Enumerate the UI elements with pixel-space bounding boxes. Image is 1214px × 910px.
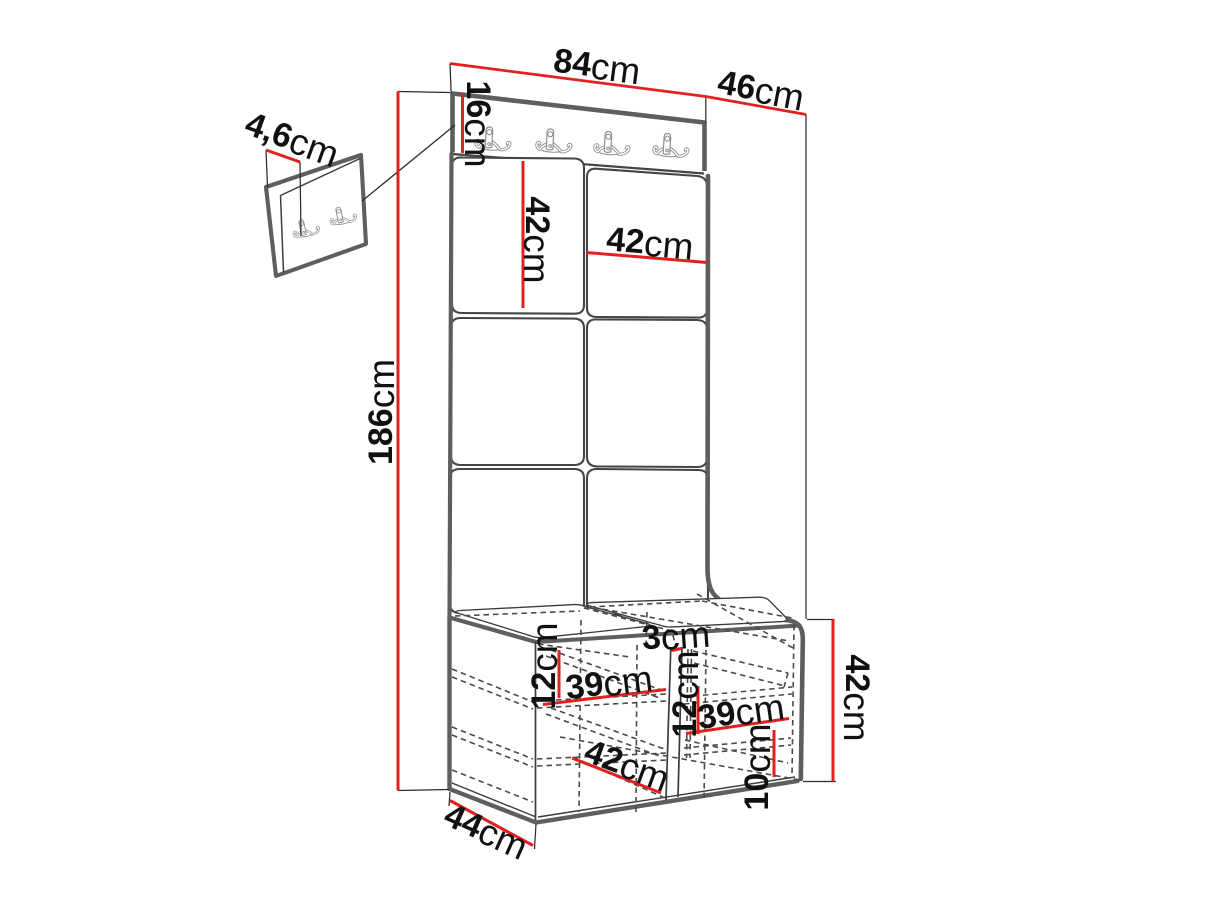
svg-text:12cm: 12cm — [524, 622, 565, 709]
svg-text:186cm: 186cm — [361, 359, 402, 465]
svg-text:10cm: 10cm — [737, 723, 778, 810]
svg-text:42cm: 42cm — [837, 654, 878, 741]
svg-text:42cm: 42cm — [517, 196, 558, 283]
svg-text:16cm: 16cm — [458, 80, 499, 167]
